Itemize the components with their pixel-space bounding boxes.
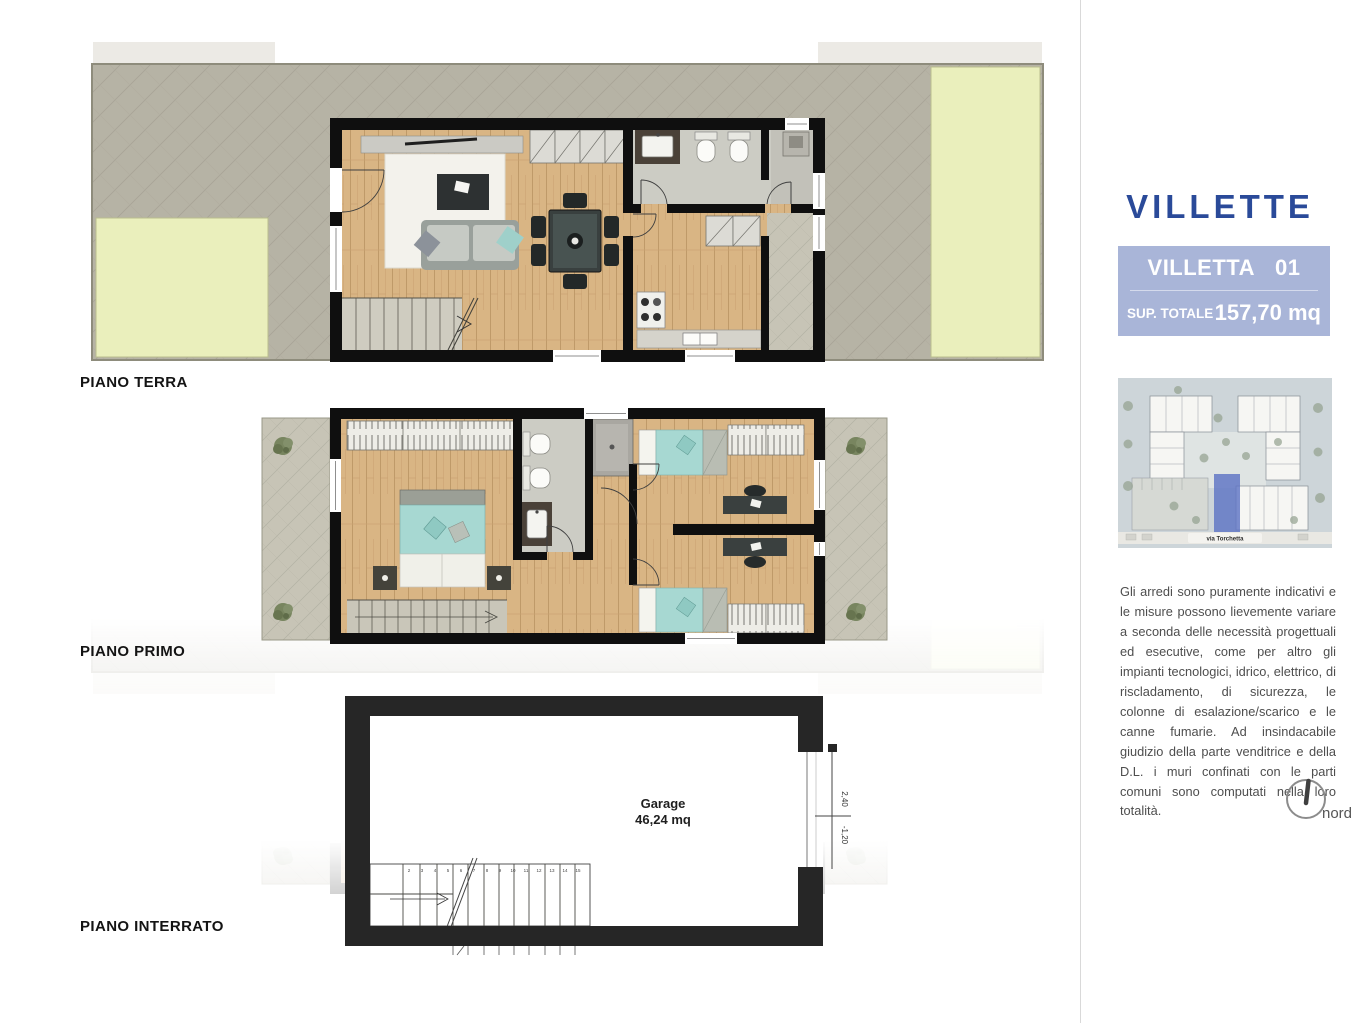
sidewalk-strip bbox=[93, 42, 275, 64]
street: via Torchetta bbox=[1118, 532, 1332, 544]
kitchen-counter bbox=[637, 330, 761, 348]
piano-interrato-label: PIANO INTERRATO bbox=[80, 918, 224, 935]
brochure-page: PIANO TERRA bbox=[0, 0, 1368, 1023]
lamp bbox=[382, 575, 388, 581]
svg-text:15: 15 bbox=[575, 868, 581, 873]
svg-text:12: 12 bbox=[536, 868, 542, 873]
lamp bbox=[496, 575, 502, 581]
unit-number: 01 bbox=[1275, 255, 1300, 281]
bidet bbox=[523, 466, 550, 490]
piano-primo-label: PIANO PRIMO bbox=[80, 643, 185, 660]
piano-primo-drawing bbox=[255, 404, 895, 649]
toilet bbox=[523, 432, 550, 456]
sidewalk-strip bbox=[818, 42, 1042, 64]
svg-text:10: 10 bbox=[510, 868, 516, 873]
sidebar-divider bbox=[1080, 0, 1081, 1023]
level-upper-label: 2,40 bbox=[840, 791, 849, 807]
ground-floor-plan bbox=[85, 40, 1052, 366]
surface-label: SUP. TOTALE bbox=[1127, 306, 1213, 321]
site-map-thumbnail: via Torchetta bbox=[1118, 378, 1332, 548]
page-title: VILLETTE bbox=[1108, 188, 1332, 226]
svg-text:11: 11 bbox=[524, 868, 529, 873]
terrace-left bbox=[262, 418, 330, 640]
master-wardrobe bbox=[347, 421, 517, 450]
wardrobe-bottom-right bbox=[728, 604, 804, 633]
piano-interrato-drawing: 23456789101112131415 bbox=[345, 694, 865, 956]
wardrobe-top-right bbox=[728, 425, 804, 455]
bidet bbox=[728, 132, 750, 162]
patio-corner bbox=[767, 213, 813, 350]
lawn-left bbox=[96, 218, 268, 357]
level-lower-label: -1,20 bbox=[840, 826, 849, 845]
tv-sideboard bbox=[361, 136, 523, 153]
stairs-ground bbox=[342, 298, 478, 350]
site-map-drawing: via Torchetta bbox=[1118, 378, 1332, 548]
unit-name: VILLETTA bbox=[1148, 255, 1255, 281]
basement-plan: 23456789101112131415 bbox=[345, 694, 865, 956]
street-name-label: via Torchetta bbox=[1207, 537, 1245, 543]
bed-single-bottom bbox=[639, 588, 727, 632]
svg-text:13: 13 bbox=[549, 868, 555, 873]
master-bed bbox=[400, 490, 485, 587]
garage-name-label: Garage bbox=[641, 796, 686, 811]
piano-terra-drawing bbox=[85, 40, 1052, 366]
stove bbox=[637, 292, 665, 328]
wardrobe-cells bbox=[530, 130, 630, 163]
surface-value: 157,70 mq bbox=[1215, 300, 1321, 326]
highlighted-unit bbox=[1214, 474, 1240, 536]
first-floor-plan bbox=[255, 404, 895, 649]
north-label: nord bbox=[1322, 805, 1352, 822]
bed-single-top bbox=[639, 430, 727, 475]
lawn-right bbox=[931, 67, 1040, 357]
toilet bbox=[695, 132, 717, 162]
compass-needle-icon bbox=[1306, 781, 1309, 803]
kitchen-closet bbox=[706, 216, 760, 246]
shower bbox=[591, 419, 633, 476]
washing-machine bbox=[783, 132, 809, 156]
sofa bbox=[414, 220, 524, 270]
svg-text:14: 14 bbox=[562, 868, 568, 873]
unit-card: VILLETTA 01 SUP. TOTALE 157,70 mq bbox=[1118, 246, 1330, 336]
stairs-first bbox=[347, 600, 507, 634]
garage-area-label: 46,24 mq bbox=[635, 812, 691, 827]
piano-terra-label: PIANO TERRA bbox=[80, 374, 188, 391]
sink-counter bbox=[635, 130, 680, 164]
garage-door-opening bbox=[798, 752, 823, 867]
